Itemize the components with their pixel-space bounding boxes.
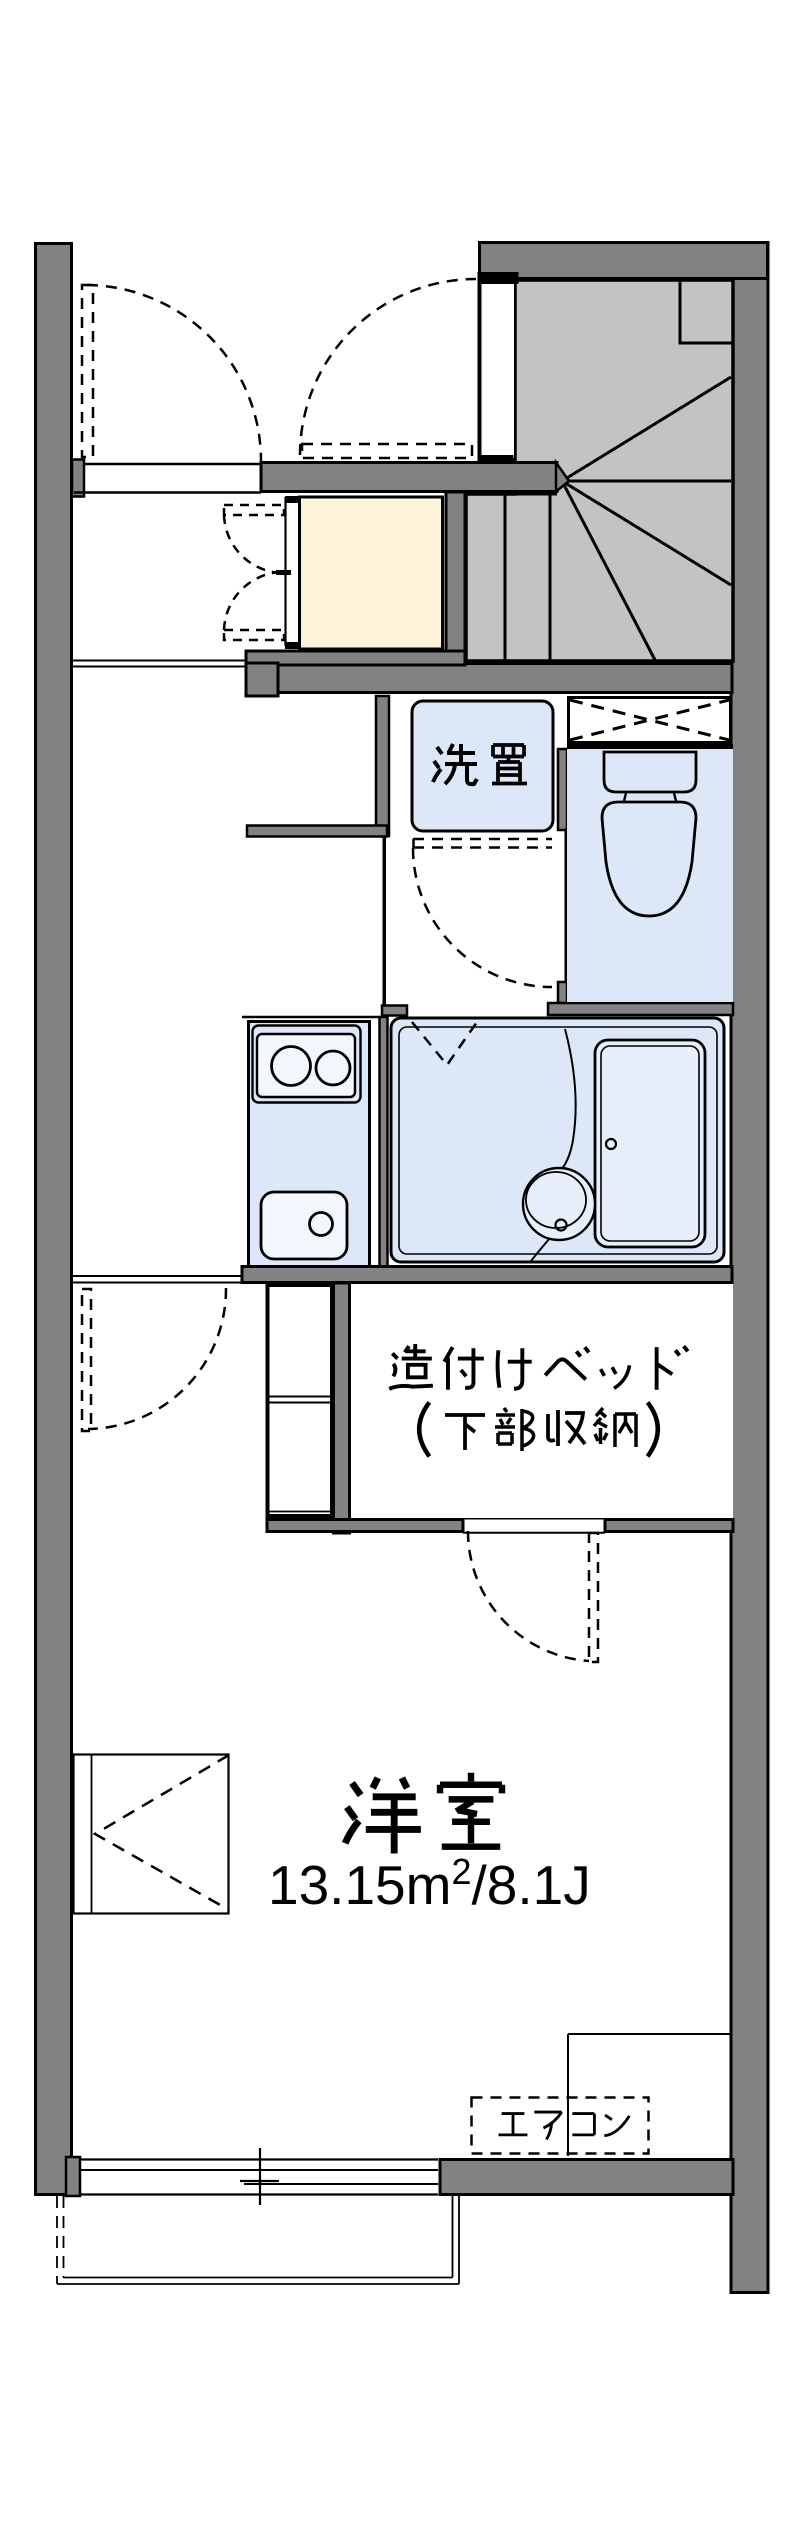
svg-text:13.15m2/8.1J: 13.15m2/8.1J: [268, 1851, 591, 1916]
